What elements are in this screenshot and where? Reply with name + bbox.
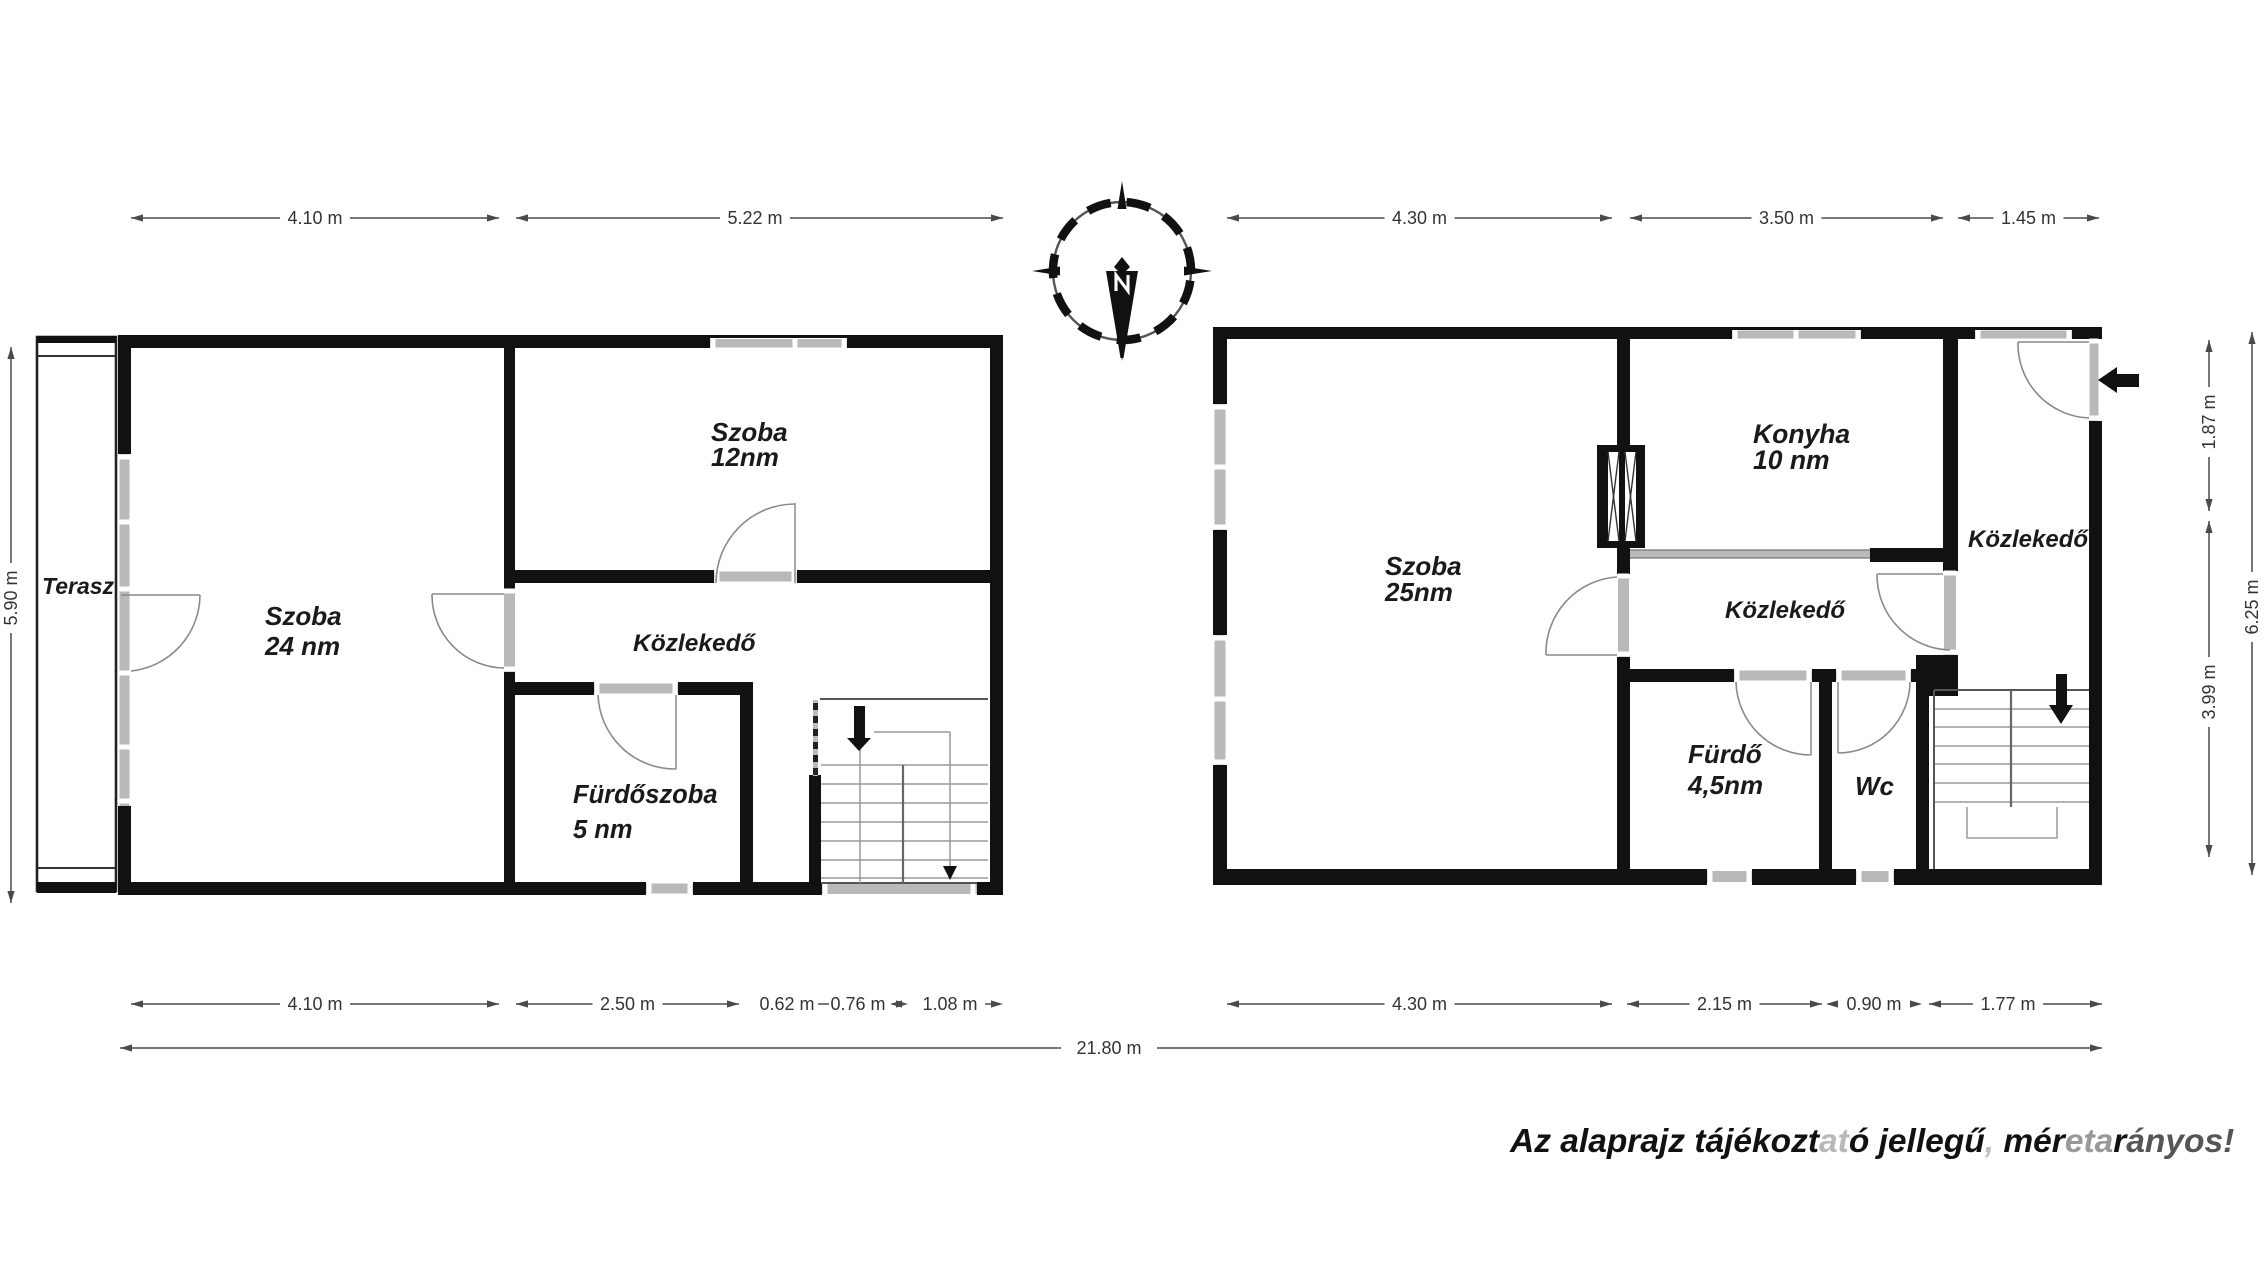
svg-text:25nm: 25nm: [1384, 577, 1453, 607]
svg-text:1.08 m: 1.08 m: [922, 994, 977, 1014]
svg-text:Közlekedő: Közlekedő: [1968, 526, 2089, 553]
svg-text:5.22 m: 5.22 m: [727, 208, 782, 228]
svg-text:Közlekedő: Közlekedő: [633, 630, 757, 657]
svg-text:2.15 m: 2.15 m: [1697, 994, 1752, 1014]
svg-text:6.25 m: 6.25 m: [2242, 579, 2262, 634]
svg-text:4.30 m: 4.30 m: [1392, 994, 1447, 1014]
svg-text:2.50 m: 2.50 m: [600, 994, 655, 1014]
svg-text:21.80 m: 21.80 m: [1076, 1038, 1141, 1058]
svg-text:Fürdőszoba: Fürdőszoba: [573, 781, 718, 809]
svg-text:0.76 m: 0.76 m: [830, 994, 885, 1014]
svg-text:4.10 m: 4.10 m: [287, 208, 342, 228]
svg-text:Fürdő: Fürdő: [1688, 739, 1763, 769]
svg-text:5 nm: 5 nm: [573, 816, 633, 844]
svg-text:Wc: Wc: [1855, 771, 1895, 801]
svg-text:24 nm: 24 nm: [264, 631, 340, 661]
svg-text:Szoba: Szoba: [265, 601, 342, 631]
svg-text:Közlekedő: Közlekedő: [1725, 597, 1846, 624]
svg-text:1.45 m: 1.45 m: [2001, 208, 2056, 228]
svg-text:10 nm: 10 nm: [1753, 445, 1830, 475]
svg-text:5.90 m: 5.90 m: [1, 570, 21, 625]
svg-text:4,5nm: 4,5nm: [1687, 770, 1763, 800]
svg-text:12nm: 12nm: [711, 442, 779, 472]
svg-text:4.10 m: 4.10 m: [287, 994, 342, 1014]
svg-text:1.77 m: 1.77 m: [1980, 994, 2035, 1014]
svg-text:3.50 m: 3.50 m: [1759, 208, 1814, 228]
svg-text:1.87 m: 1.87 m: [2199, 394, 2219, 449]
svg-text:3.99 m: 3.99 m: [2199, 664, 2219, 719]
svg-text:0.90 m: 0.90 m: [1846, 994, 1901, 1014]
svg-text:Az alaprajz tájékoztató jelleg: Az alaprajz tájékoztató jellegű, méretar…: [1509, 1123, 2234, 1160]
svg-text:Terasz: Terasz: [42, 573, 115, 599]
svg-text:4.30 m: 4.30 m: [1392, 208, 1447, 228]
svg-text:0.62 m: 0.62 m: [759, 994, 814, 1014]
